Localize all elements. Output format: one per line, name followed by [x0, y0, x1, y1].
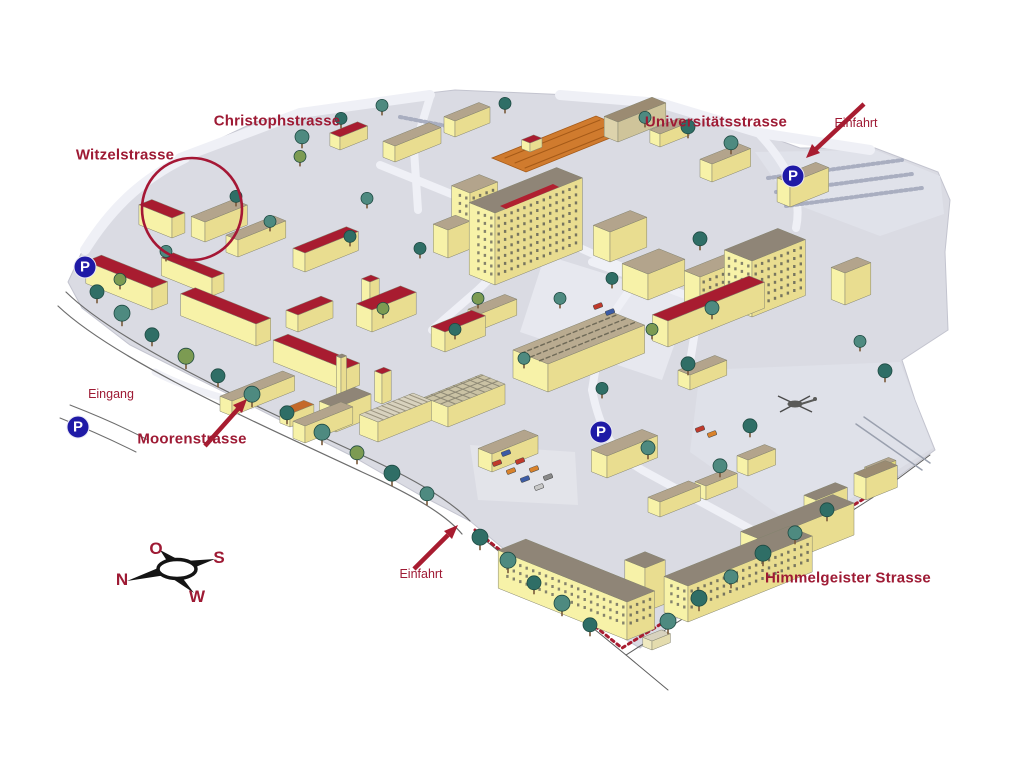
campus-map: Christophstrasse Witzelstrasse Universit… — [0, 0, 1024, 768]
compass-letter-s: S — [213, 548, 224, 568]
entrance-label-einfahrt-south: Einfahrt — [399, 567, 442, 581]
parking-icon-central: P — [590, 421, 613, 444]
street-label-witzelstrasse: Witzelstrasse — [76, 147, 174, 164]
parking-icon-witzelstrasse: P — [74, 256, 97, 279]
street-label-himmelgeister-strasse: Himmelgeister Strasse — [765, 570, 931, 587]
parking-icon-moorenstrasse: P — [67, 416, 90, 439]
entrance-label-einfahrt-north: Einfahrt — [834, 116, 877, 130]
compass-letter-o: O — [149, 539, 162, 559]
entrance-label-eingang: Eingang — [88, 387, 134, 401]
street-label-universitaetsstrasse: Universitätsstrasse — [645, 114, 787, 131]
street-label-moorenstrasse: Moorenstrasse — [137, 431, 246, 448]
parking-icon-universitaetsstrasse: P — [782, 165, 805, 188]
entrance-arrow-south-icon — [414, 525, 458, 569]
street-label-christophstrasse: Christophstrasse — [214, 113, 341, 130]
compass-letter-w: W — [189, 587, 205, 607]
compass-letter-n: N — [116, 570, 128, 590]
